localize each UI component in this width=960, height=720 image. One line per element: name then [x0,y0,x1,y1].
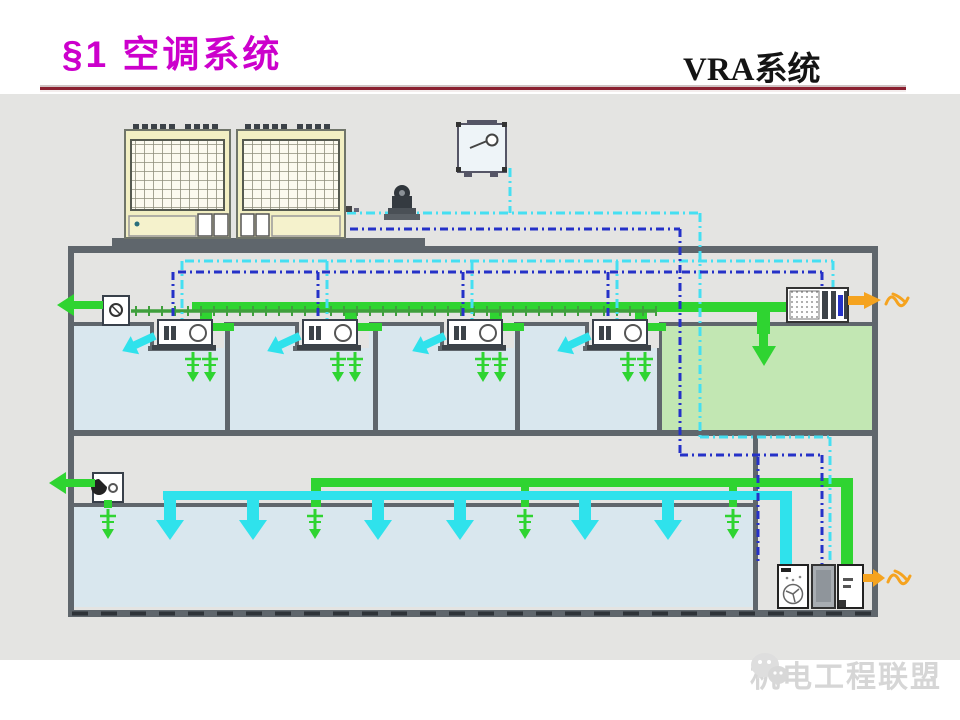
indoor-unit-3 [442,320,506,350]
watermark: 机电工程联盟 [750,652,942,696]
outdoor-unit-2 [237,124,345,238]
heat-recovery-unit [787,288,848,322]
slide: §1 空调系统 VRA系统 机电工程联盟 [0,0,960,720]
hvac-diagram [0,0,960,720]
floor-unit-fan [778,565,808,608]
page-title: VRA系统 [683,42,821,90]
floor-slab [68,430,878,436]
outdoor-unit-1 [125,124,230,238]
exhaust-fan-lower [91,473,123,508]
upper-wall-1 [225,322,230,430]
wechat-logo-icon [750,652,790,688]
upper-wall-2 [373,322,378,430]
roof-platform [112,238,425,247]
exhaust-fan-upper [103,296,129,325]
indoor-unit-1 [152,320,216,350]
roof [68,246,878,253]
indoor-unit-2 [297,320,361,350]
lower-ceiling-line [74,503,757,507]
floor-unit-middle [812,565,835,608]
upper-wall-3 [515,322,520,430]
title-divider [40,87,906,90]
floor-unit-right [838,565,863,608]
section-title: §1 空调系统 [62,24,282,78]
expansion-tank [456,120,507,177]
indoor-unit-4 [587,320,651,350]
